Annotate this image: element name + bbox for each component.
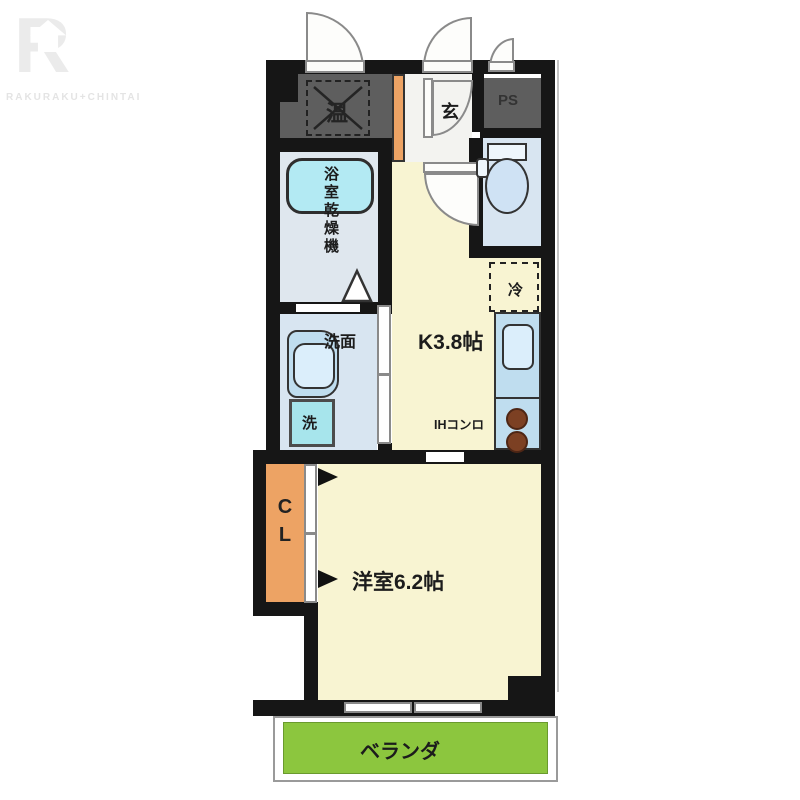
stove-label: IHコンロ (434, 414, 484, 433)
wall (266, 138, 392, 152)
toilet-bowl (485, 158, 529, 214)
balcony-window (414, 702, 482, 713)
fridge-space: 冷 (489, 262, 539, 312)
bathroom-label: 浴室乾燥機 (320, 166, 341, 300)
kitchen-label: K3.8帖 (418, 326, 483, 356)
door-leaf (305, 60, 365, 73)
utility-label: 温 (326, 96, 348, 128)
wall (392, 450, 555, 464)
door-leaf (488, 61, 515, 72)
kitchen-door-leaf (423, 162, 480, 173)
wall (378, 150, 392, 310)
floorplan-canvas: R RAKURAKU+CHINTAI (0, 0, 800, 800)
wall (266, 60, 280, 452)
entrance-door-leaf (422, 60, 473, 73)
wall (253, 450, 266, 616)
water-heater-box: 温 (306, 80, 370, 136)
wall (280, 74, 298, 102)
brand-logo: R RAKURAKU+CHINTAI (0, 0, 180, 110)
entrance-label: 玄 (441, 98, 459, 124)
balcony-window (344, 702, 412, 713)
folding-door-arrow-icon (316, 466, 340, 488)
folding-door-arrow-icon (316, 568, 340, 590)
wall (392, 74, 405, 162)
pipe-space-label: PS (498, 92, 518, 109)
toilet-handle (476, 158, 489, 178)
sliding-door (377, 374, 391, 444)
stove-burner (506, 408, 528, 430)
door-opening (426, 452, 464, 462)
wall (472, 74, 484, 132)
sliding-door (377, 305, 391, 375)
wall (253, 450, 392, 464)
western-room-label: 洋室6.2帖 (352, 566, 444, 596)
wall (304, 602, 318, 716)
wall (480, 128, 542, 138)
brand-logo-text: RAKURAKU+CHINTAI (6, 92, 141, 103)
washer-label: 洗 (302, 412, 317, 433)
door-direction-triangle-icon (340, 268, 374, 304)
washroom-label: 洗面 (324, 328, 356, 352)
balcony-label: ベランダ (360, 735, 440, 764)
fridge-label: 冷 (508, 279, 523, 300)
kitchen-sink (502, 324, 534, 370)
closet-label: CL (273, 496, 296, 576)
wall-outer-line (557, 60, 559, 692)
door-opening (296, 304, 360, 312)
counter-divider (496, 397, 539, 399)
wall (541, 60, 555, 684)
stove-burner (506, 431, 528, 453)
